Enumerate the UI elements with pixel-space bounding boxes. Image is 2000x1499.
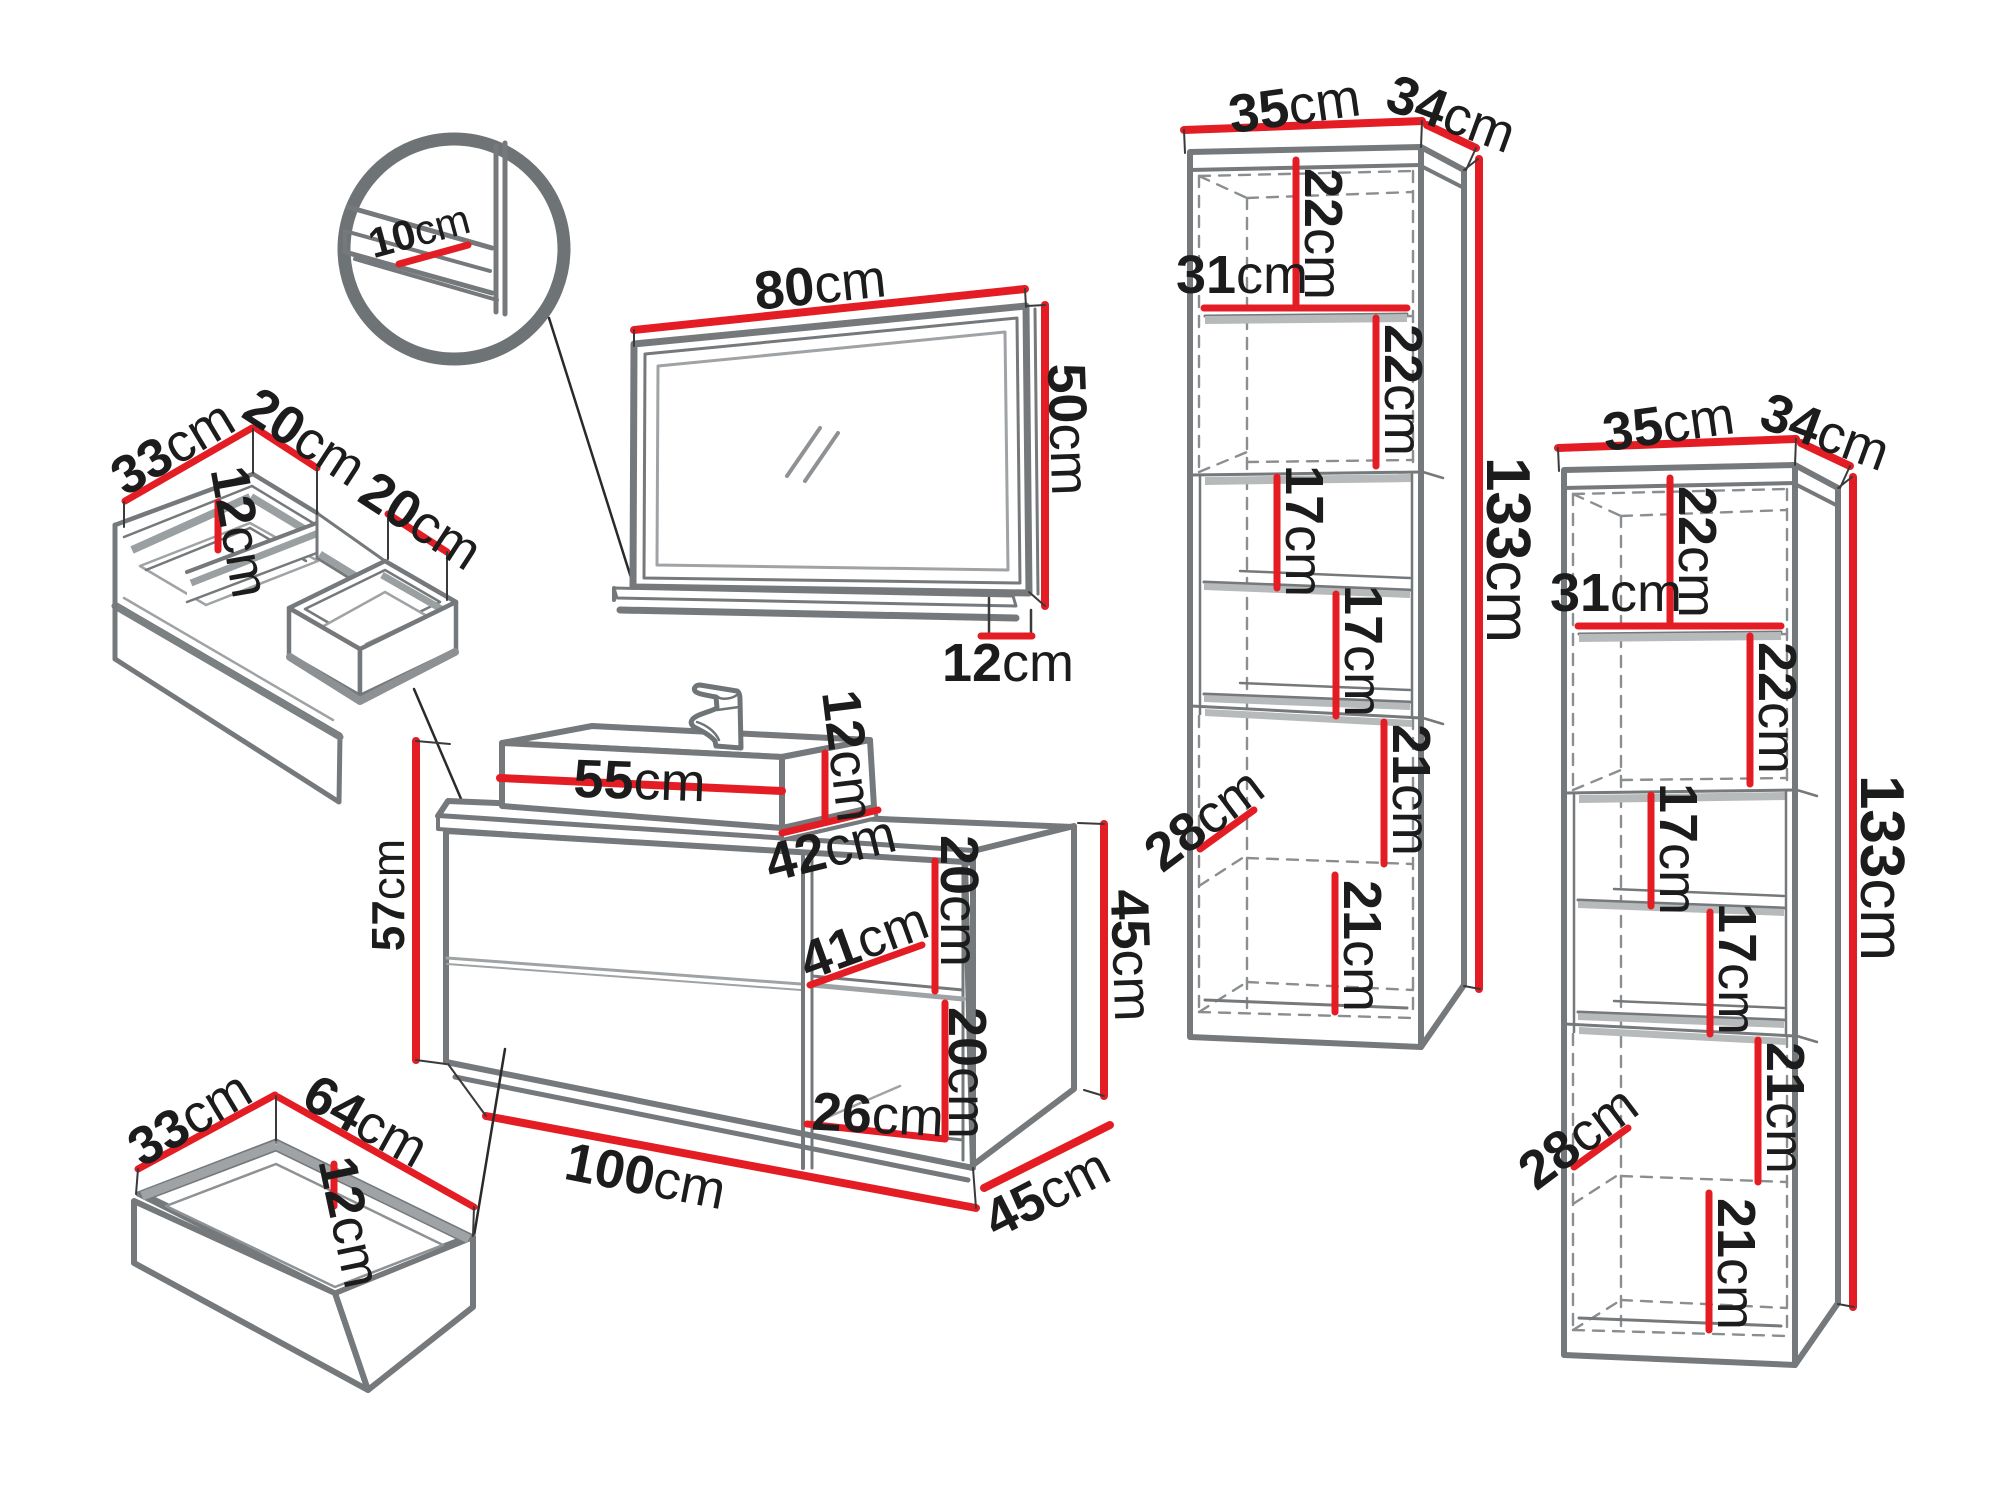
svg-text:20cm: 20cm bbox=[929, 835, 989, 967]
svg-text:50cm: 50cm bbox=[1036, 362, 1101, 496]
svg-text:55cm: 55cm bbox=[573, 749, 707, 814]
svg-text:31cm: 31cm bbox=[1176, 245, 1308, 305]
svg-text:21cm: 21cm bbox=[1381, 724, 1441, 856]
svg-text:17cm: 17cm bbox=[1333, 585, 1393, 717]
svg-text:45cm: 45cm bbox=[1099, 888, 1164, 1022]
svg-text:20cm: 20cm bbox=[937, 1007, 997, 1139]
svg-text:17cm: 17cm bbox=[1274, 465, 1334, 597]
svg-text:22cm: 22cm bbox=[1373, 324, 1433, 456]
svg-text:26cm: 26cm bbox=[810, 1082, 945, 1149]
svg-text:133cm: 133cm bbox=[1473, 457, 1542, 643]
svg-text:57cm: 57cm bbox=[362, 839, 414, 952]
svg-text:12cm: 12cm bbox=[942, 633, 1074, 693]
svg-text:21cm: 21cm bbox=[1332, 880, 1392, 1012]
